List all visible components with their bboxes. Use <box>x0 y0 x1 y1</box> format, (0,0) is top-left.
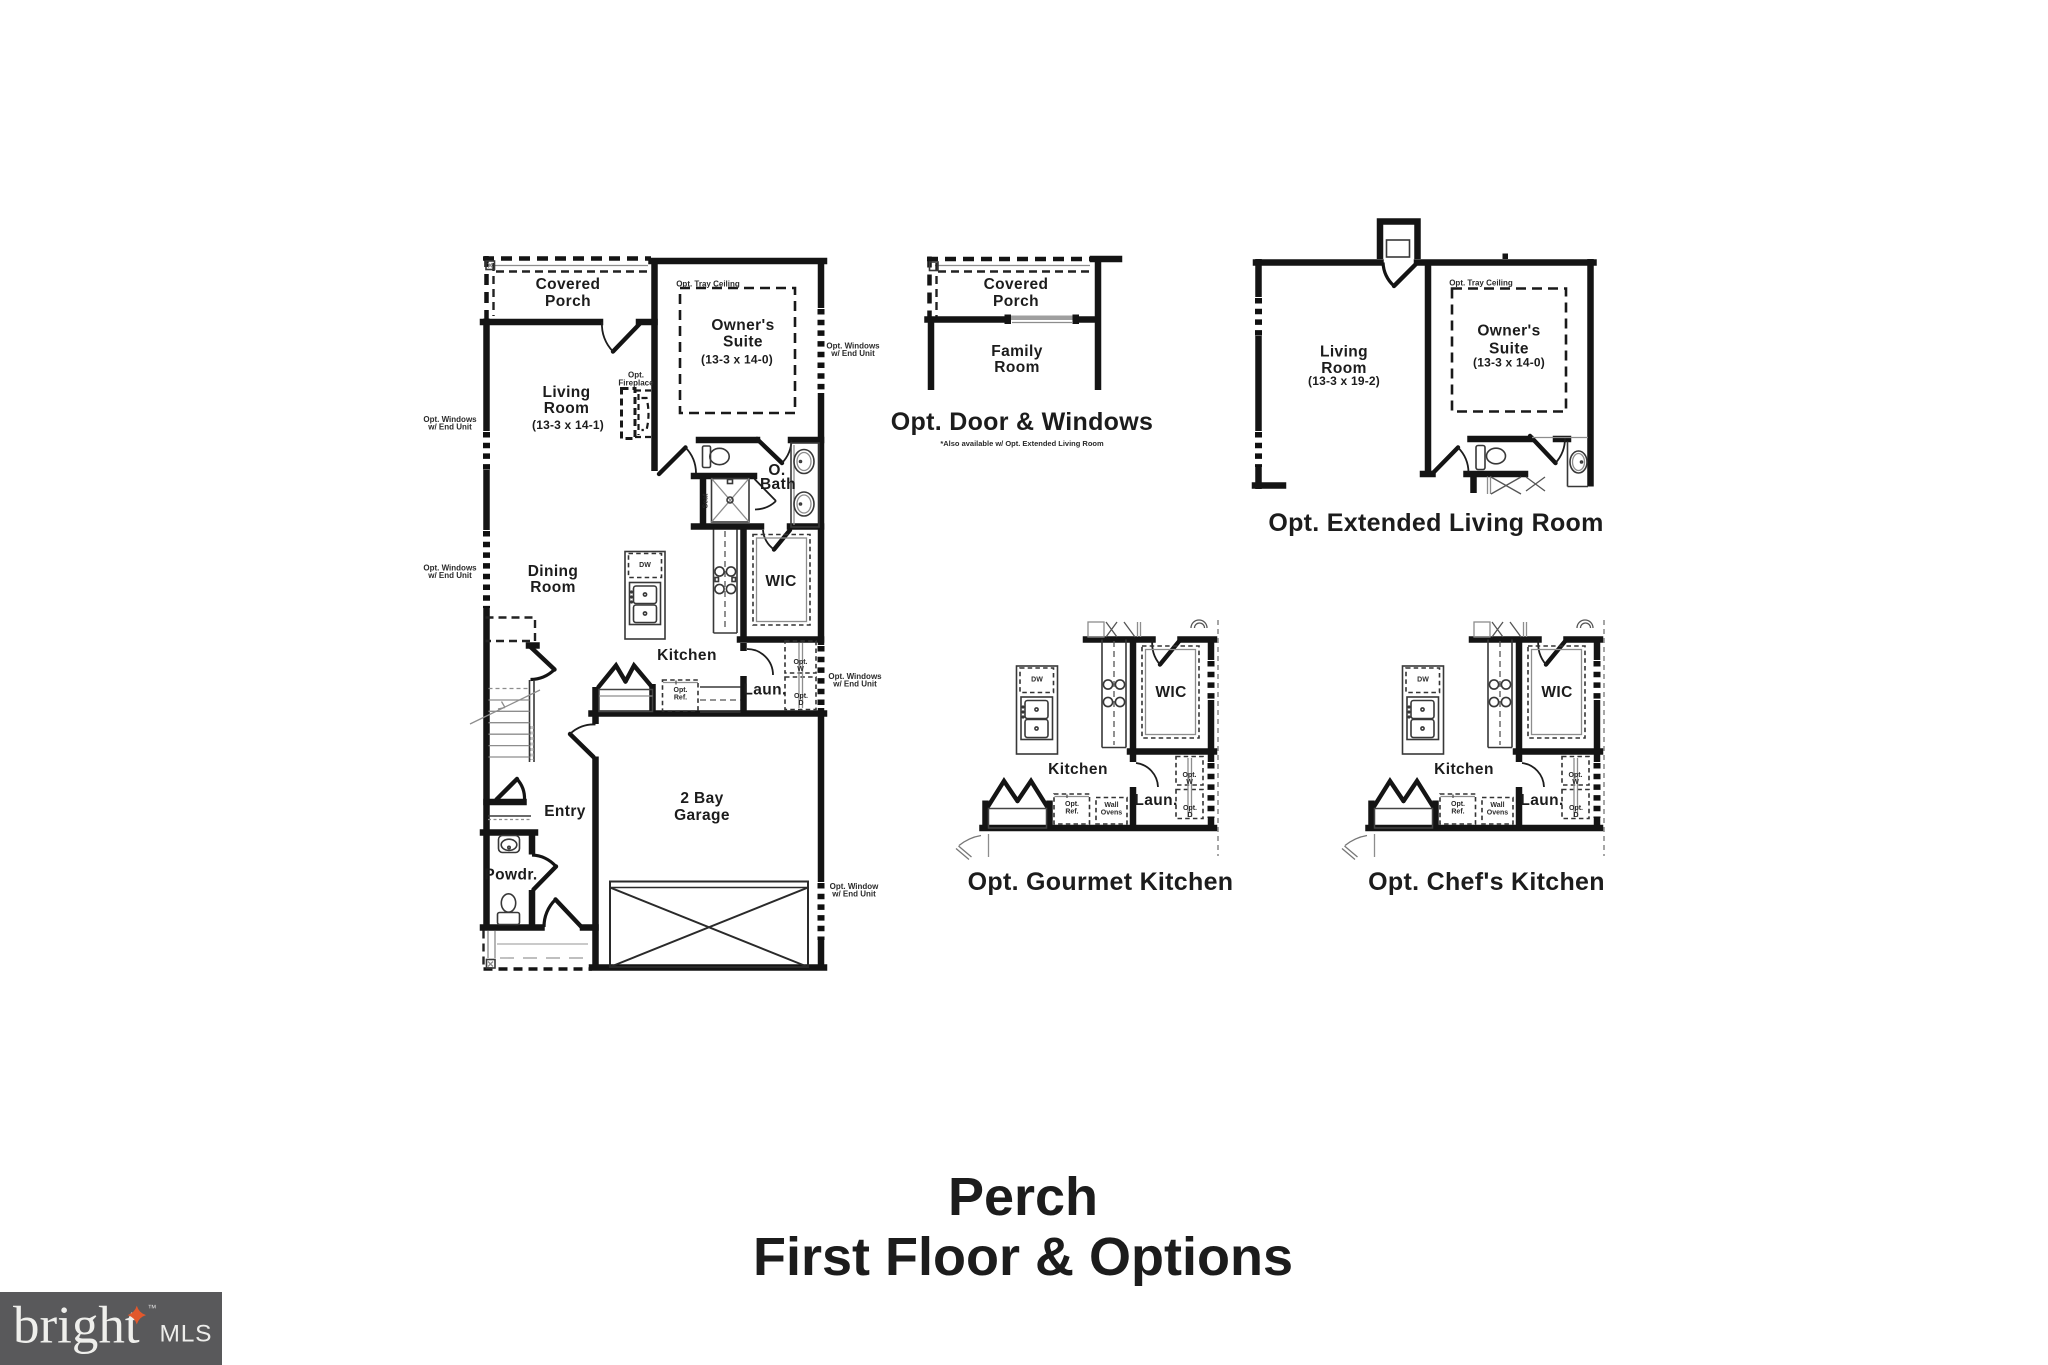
svg-text:2 Bay: 2 Bay <box>680 790 723 807</box>
svg-text:Opt.: Opt. <box>1065 801 1079 808</box>
svg-text:Opt. Extended Living Room: Opt. Extended Living Room <box>1268 509 1603 537</box>
svg-text:Entry: Entry <box>544 803 586 820</box>
svg-text:Dining: Dining <box>528 563 579 580</box>
svg-text:Seat: Seat <box>703 493 710 508</box>
svg-text:Family: Family <box>991 343 1043 360</box>
svg-text:Owner's: Owner's <box>1477 323 1540 340</box>
svg-text:Kitchen: Kitchen <box>657 647 717 664</box>
svg-text:w/ End Unit: w/ End Unit <box>831 890 876 899</box>
svg-text:Opt.: Opt. <box>794 693 808 700</box>
svg-text:Suite: Suite <box>723 334 763 351</box>
svg-text:MLS: MLS <box>160 1321 213 1348</box>
svg-text:Porch: Porch <box>545 293 591 310</box>
svg-text:Opt.: Opt. <box>1183 772 1197 779</box>
svg-text:Opt. Chef's Kitchen: Opt. Chef's Kitchen <box>1368 868 1605 896</box>
svg-text:DW: DW <box>1031 677 1043 684</box>
svg-text:w/ End Unit: w/ End Unit <box>830 349 875 358</box>
svg-text:w/ End Unit: w/ End Unit <box>427 571 472 580</box>
svg-text:Powdr.: Powdr. <box>484 867 537 884</box>
svg-text:Ref.: Ref. <box>674 695 687 702</box>
svg-text:Opt. Door & Windows: Opt. Door & Windows <box>891 408 1153 436</box>
svg-text:Living: Living <box>542 384 590 401</box>
svg-text:(13-3 x 19-2): (13-3 x 19-2) <box>1308 374 1380 388</box>
svg-text:Bath: Bath <box>760 476 796 493</box>
svg-text:(13-3 x 14-0): (13-3 x 14-0) <box>701 353 773 367</box>
svg-text:(13-3 x 14-0): (13-3 x 14-0) <box>1473 356 1545 370</box>
svg-text:Room: Room <box>530 579 576 596</box>
svg-text:(13-3 x 14-1): (13-3 x 14-1) <box>532 418 604 432</box>
svg-text:Opt.: Opt. <box>1183 805 1197 812</box>
svg-text:*Also available w/ Opt. Extend: *Also available w/ Opt. Extended Living … <box>940 439 1104 448</box>
svg-text:Room: Room <box>994 359 1040 376</box>
svg-text:Opt. Gourmet Kitchen: Opt. Gourmet Kitchen <box>968 868 1234 896</box>
svg-text:Laun.: Laun. <box>1134 792 1177 809</box>
svg-text:Garage: Garage <box>674 807 730 824</box>
svg-text:Kitchen: Kitchen <box>1048 761 1108 778</box>
svg-text:Laun.: Laun. <box>743 682 786 699</box>
svg-text:First Floor & Options: First Floor & Options <box>753 1227 1293 1287</box>
svg-text:WIC: WIC <box>765 573 796 590</box>
svg-text:Opt.: Opt. <box>794 659 808 666</box>
svg-text:w/ End Unit: w/ End Unit <box>427 423 472 432</box>
svg-text:bright: bright <box>13 1297 140 1355</box>
svg-text:Opt. Tray Ceiling: Opt. Tray Ceiling <box>676 280 740 289</box>
svg-text:Owner's: Owner's <box>711 317 774 334</box>
svg-text:Ovens: Ovens <box>1101 810 1123 817</box>
svg-text:Porch: Porch <box>993 293 1039 310</box>
svg-text:WIC: WIC <box>1155 684 1186 701</box>
svg-text:Room: Room <box>544 400 590 417</box>
svg-text:D: D <box>1187 812 1192 819</box>
svg-text:W: W <box>797 666 804 673</box>
svg-text:Opt. Tray Ceiling: Opt. Tray Ceiling <box>1449 279 1513 288</box>
svg-text:™: ™ <box>148 1303 157 1313</box>
svg-text:Covered: Covered <box>984 276 1049 293</box>
svg-text:DW: DW <box>639 562 651 569</box>
svg-text:Opt.: Opt. <box>674 687 688 694</box>
svg-text:w/ End Unit: w/ End Unit <box>832 680 877 689</box>
svg-text:Perch: Perch <box>948 1167 1098 1227</box>
svg-text:D: D <box>798 700 803 707</box>
svg-text:Wall: Wall <box>1104 802 1118 809</box>
svg-text:Living: Living <box>1320 344 1368 361</box>
svg-text:Fireplace: Fireplace <box>618 379 654 388</box>
svg-text:Ref.: Ref. <box>1065 809 1078 816</box>
svg-text:Covered: Covered <box>536 276 601 293</box>
svg-text:W: W <box>1186 779 1193 786</box>
